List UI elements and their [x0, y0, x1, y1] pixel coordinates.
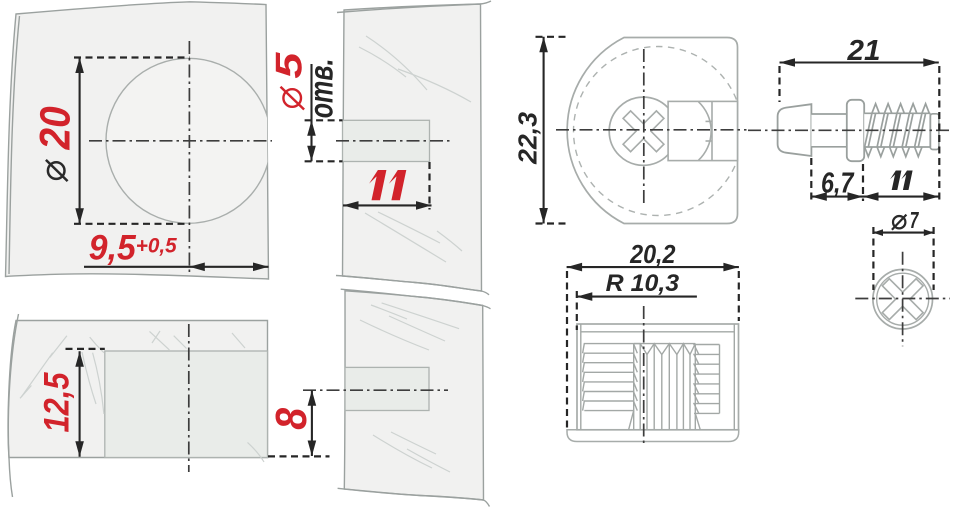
svg-text:20,2: 20,2	[629, 241, 676, 269]
svg-text:12,5: 12,5	[37, 372, 76, 432]
svg-text:8: 8	[267, 408, 315, 430]
svg-text:22,3: 22,3	[513, 112, 543, 165]
svg-text:20: 20	[31, 106, 79, 150]
svg-text:отв.: отв.	[303, 59, 340, 119]
svg-text:6,7: 6,7	[821, 166, 855, 199]
svg-text:21: 21	[847, 34, 881, 67]
svg-text:7: 7	[910, 208, 919, 234]
svg-text:R 10,3: R 10,3	[606, 270, 680, 296]
